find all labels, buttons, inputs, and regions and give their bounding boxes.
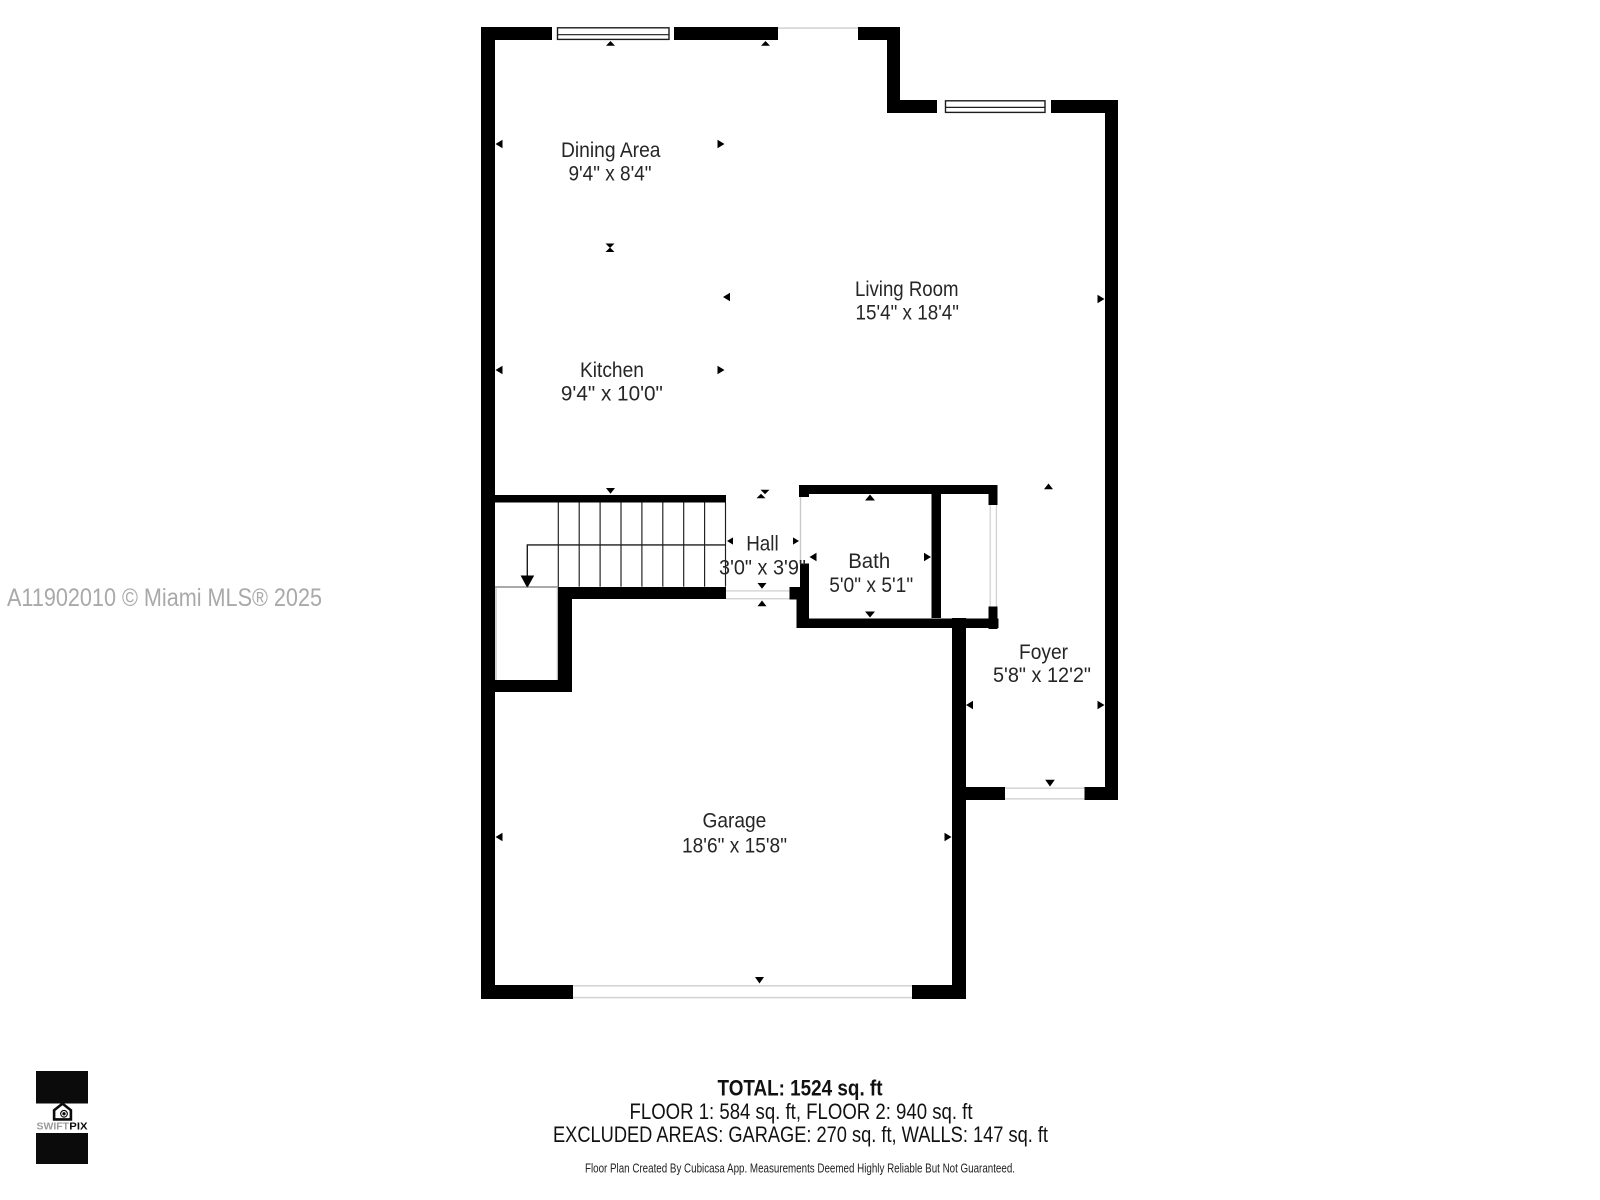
- svg-text:18'6" x 15'8": 18'6" x 15'8": [682, 835, 787, 858]
- svg-text:Dining Area: Dining Area: [561, 139, 661, 162]
- svg-text:3'0" x 3'9": 3'0" x 3'9": [719, 556, 806, 579]
- svg-text:Hall: Hall: [746, 533, 779, 556]
- svg-text:TOTAL: 1524 sq. ft: TOTAL: 1524 sq. ft: [718, 1076, 884, 1101]
- svg-text:Garage: Garage: [703, 810, 767, 833]
- svg-text:EXCLUDED AREAS: GARAGE: 270 sq: EXCLUDED AREAS: GARAGE: 270 sq. ft, WALL…: [553, 1122, 1048, 1147]
- svg-text:5'8" x 12'2": 5'8" x 12'2": [993, 664, 1091, 687]
- svg-text:9'4" x 8'4": 9'4" x 8'4": [569, 163, 652, 186]
- svg-text:Floor Plan Created By Cubicasa: Floor Plan Created By Cubicasa App. Meas…: [585, 1161, 1015, 1176]
- svg-text:A11902010 © Miami MLS® 2025: A11902010 © Miami MLS® 2025: [7, 584, 322, 612]
- svg-text:15'4" x 18'4": 15'4" x 18'4": [856, 302, 960, 325]
- svg-text:SWIFT: SWIFT: [37, 1120, 70, 1132]
- svg-text:5'0" x 5'1": 5'0" x 5'1": [829, 574, 913, 597]
- svg-text:Foyer: Foyer: [1019, 641, 1068, 664]
- svg-text:Bath: Bath: [848, 550, 890, 573]
- svg-text:PIX: PIX: [69, 1120, 87, 1132]
- svg-text:Kitchen: Kitchen: [580, 359, 644, 382]
- svg-text:FLOOR 1: 584 sq. ft, FLOOR 2:: FLOOR 1: 584 sq. ft, FLOOR 2: 940 sq. ft: [630, 1099, 973, 1124]
- svg-text:Living Room: Living Room: [855, 278, 959, 301]
- svg-text:9'4" x 10'0": 9'4" x 10'0": [561, 383, 663, 406]
